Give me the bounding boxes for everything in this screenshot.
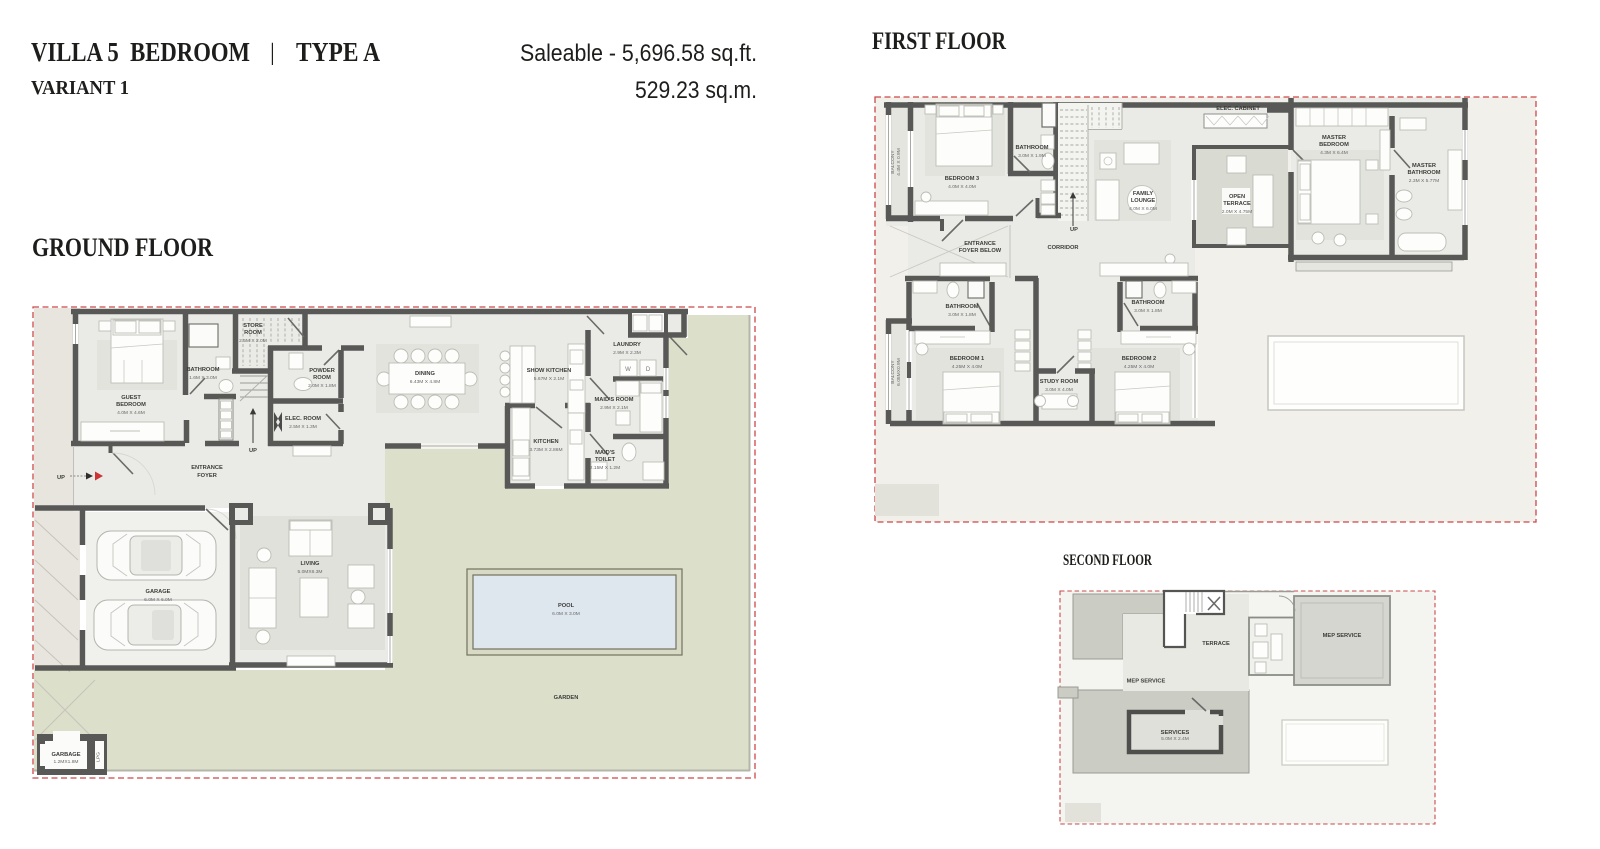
svg-text:5.0MX6.3M: 5.0MX6.3M: [297, 569, 322, 575]
svg-text:TOILET: TOILET: [595, 457, 616, 463]
svg-text:TERRACE: TERRACE: [1202, 641, 1230, 647]
svg-text:LOUNGE: LOUNGE: [1131, 198, 1156, 204]
svg-text:2.3M X 5.77M: 2.3M X 5.77M: [1409, 178, 1439, 184]
svg-text:2.9M X 2.1M: 2.9M X 2.1M: [600, 405, 628, 411]
svg-text:POOL: POOL: [558, 603, 575, 609]
svg-text:5.0M X 2.4M: 5.0M X 2.4M: [1161, 736, 1189, 742]
svg-text:POWDER: POWDER: [309, 368, 335, 374]
svg-text:UP: UP: [249, 448, 257, 454]
svg-text:6.0M X 6.0M: 6.0M X 6.0M: [144, 597, 172, 603]
svg-text:BATHROOM: BATHROOM: [186, 367, 219, 373]
svg-text:3.0M X 1.8M: 3.0M X 1.8M: [948, 312, 976, 318]
svg-text:2.0M X 4.75M: 2.0M X 4.75M: [1222, 209, 1252, 215]
svg-text:BEDROOM 3: BEDROOM 3: [945, 176, 979, 182]
svg-text:BATHROOM: BATHROOM: [1015, 145, 1048, 151]
svg-text:3.73M X 2.86M: 3.73M X 2.86M: [529, 447, 562, 453]
svg-text:MEP SERVICE: MEP SERVICE: [1127, 679, 1166, 685]
svg-text:SERVICES: SERVICES: [1161, 730, 1190, 736]
svg-text:LPG: LPG: [96, 752, 102, 762]
svg-text:6.0M X 3.0M: 6.0M X 3.0M: [552, 611, 580, 617]
svg-text:2.5M X 1.3M: 2.5M X 1.3M: [289, 424, 317, 430]
svg-text:3.0M X 4.0M: 3.0M X 4.0M: [1045, 387, 1073, 393]
svg-text:ROOM: ROOM: [244, 330, 262, 336]
svg-text:FIRST FLOOR: FIRST FLOOR: [872, 28, 1007, 55]
svg-text:UP: UP: [1070, 227, 1078, 233]
svg-text:BATHROOM: BATHROOM: [1407, 170, 1440, 176]
svg-text:BALCONY: BALCONY: [890, 360, 896, 384]
svg-text:2.0M X 1.8M: 2.0M X 1.8M: [308, 383, 336, 389]
svg-text:VILLA 5 BEDROOM: VILLA 5 BEDROOM: [31, 37, 250, 67]
svg-text:FOYER BELOW: FOYER BELOW: [959, 248, 1002, 254]
svg-text:GARBAGE: GARBAGE: [51, 752, 80, 758]
svg-text:BEDROOM: BEDROOM: [1319, 142, 1349, 148]
svg-text:5.67M X 2.1M: 5.67M X 2.1M: [534, 376, 564, 382]
svg-text:W: W: [625, 367, 631, 373]
svg-text:MEP SERVICE: MEP SERVICE: [1323, 633, 1362, 639]
svg-text:UP: UP: [57, 475, 65, 481]
svg-text:GUEST: GUEST: [121, 395, 141, 401]
svg-text:STORE: STORE: [243, 323, 263, 329]
svg-text:6.43M X 4.8M: 6.43M X 4.8M: [410, 379, 440, 385]
svg-text:TYPE A: TYPE A: [296, 37, 380, 67]
svg-text:STUDY ROOM: STUDY ROOM: [1040, 379, 1079, 385]
svg-text:MASTER: MASTER: [1412, 163, 1436, 169]
svg-text:BEDROOM 2: BEDROOM 2: [1122, 356, 1156, 362]
svg-text:FOYER: FOYER: [197, 473, 217, 479]
svg-text:KITCHEN: KITCHEN: [533, 439, 558, 445]
svg-text:SECOND FLOOR: SECOND FLOOR: [1063, 552, 1152, 569]
svg-text:ENTRANCE: ENTRANCE: [964, 241, 996, 247]
svg-text:D: D: [646, 367, 651, 373]
svg-text:4.4M X 0.9M: 4.4M X 0.9M: [896, 148, 902, 176]
svg-text:CORRIDOR: CORRIDOR: [1048, 245, 1079, 251]
svg-text:MASTER: MASTER: [1322, 135, 1346, 141]
svg-text:3.0M X 1.9M: 3.0M X 1.9M: [1018, 153, 1046, 159]
svg-text:BATHROOM: BATHROOM: [945, 304, 978, 310]
svg-text:GROUND FLOOR: GROUND FLOOR: [32, 233, 213, 262]
svg-text:2.15M X 1.2M: 2.15M X 1.2M: [590, 465, 620, 471]
svg-text:MAID'S: MAID'S: [595, 450, 615, 456]
svg-text:529.23 sq.m.: 529.23 sq.m.: [635, 77, 757, 104]
svg-text:|: |: [270, 40, 275, 66]
svg-text:LAUNDRY: LAUNDRY: [613, 342, 641, 348]
svg-text:Saleable - 5,696.58 sq.ft.: Saleable - 5,696.58 sq.ft.: [520, 40, 757, 67]
svg-text:BEDROOM 1: BEDROOM 1: [950, 356, 984, 362]
svg-text:4.0M X 4.6M: 4.0M X 4.6M: [117, 410, 145, 416]
svg-text:2.9M X 2.3M: 2.9M X 2.3M: [613, 350, 641, 356]
svg-text:BATHROOM: BATHROOM: [1131, 300, 1164, 306]
svg-text:ROOM: ROOM: [313, 375, 331, 381]
svg-text:ELEC. ROOM: ELEC. ROOM: [285, 416, 321, 422]
svg-text:LIVING: LIVING: [301, 561, 321, 567]
svg-text:ENTRANCE: ENTRANCE: [191, 465, 223, 471]
svg-text:SHOW KITCHEN: SHOW KITCHEN: [527, 368, 572, 374]
svg-text:BALCONY: BALCONY: [890, 150, 896, 174]
svg-text:GARDEN: GARDEN: [554, 695, 579, 701]
svg-text:OPEN: OPEN: [1229, 194, 1245, 200]
svg-text:GARAGE: GARAGE: [146, 589, 171, 595]
svg-text:TERRACE: TERRACE: [1223, 201, 1251, 207]
svg-text:1.6M X 3.0M: 1.6M X 3.0M: [189, 375, 217, 381]
svg-text:FAMILY: FAMILY: [1133, 191, 1154, 197]
svg-text:3.0M X 1.8M: 3.0M X 1.8M: [1134, 308, 1162, 314]
svg-text:DINING: DINING: [415, 371, 435, 377]
svg-text:4.3M X 6.4M: 4.3M X 6.4M: [1320, 150, 1348, 156]
svg-text:VARIANT 1: VARIANT 1: [31, 77, 129, 99]
svg-text:BEDROOM: BEDROOM: [116, 402, 146, 408]
svg-text:ELEC. CABINET: ELEC. CABINET: [1216, 106, 1260, 112]
svg-text:4.25M X 4.0M: 4.25M X 4.0M: [1124, 364, 1154, 370]
svg-text:MAID'S ROOM: MAID'S ROOM: [595, 397, 634, 403]
svg-text:2.5M X 2.0M: 2.5M X 2.0M: [239, 338, 267, 344]
svg-text:4.0M X 4.0M: 4.0M X 4.0M: [948, 184, 976, 190]
svg-text:4.25M X 4.0M: 4.25M X 4.0M: [952, 364, 982, 370]
svg-text:4.0M X 6.0M: 4.0M X 6.0M: [1129, 206, 1157, 212]
svg-text:6.05MX0.9M: 6.05MX0.9M: [896, 358, 902, 386]
svg-text:1.2MX1.8M: 1.2MX1.8M: [53, 759, 78, 765]
